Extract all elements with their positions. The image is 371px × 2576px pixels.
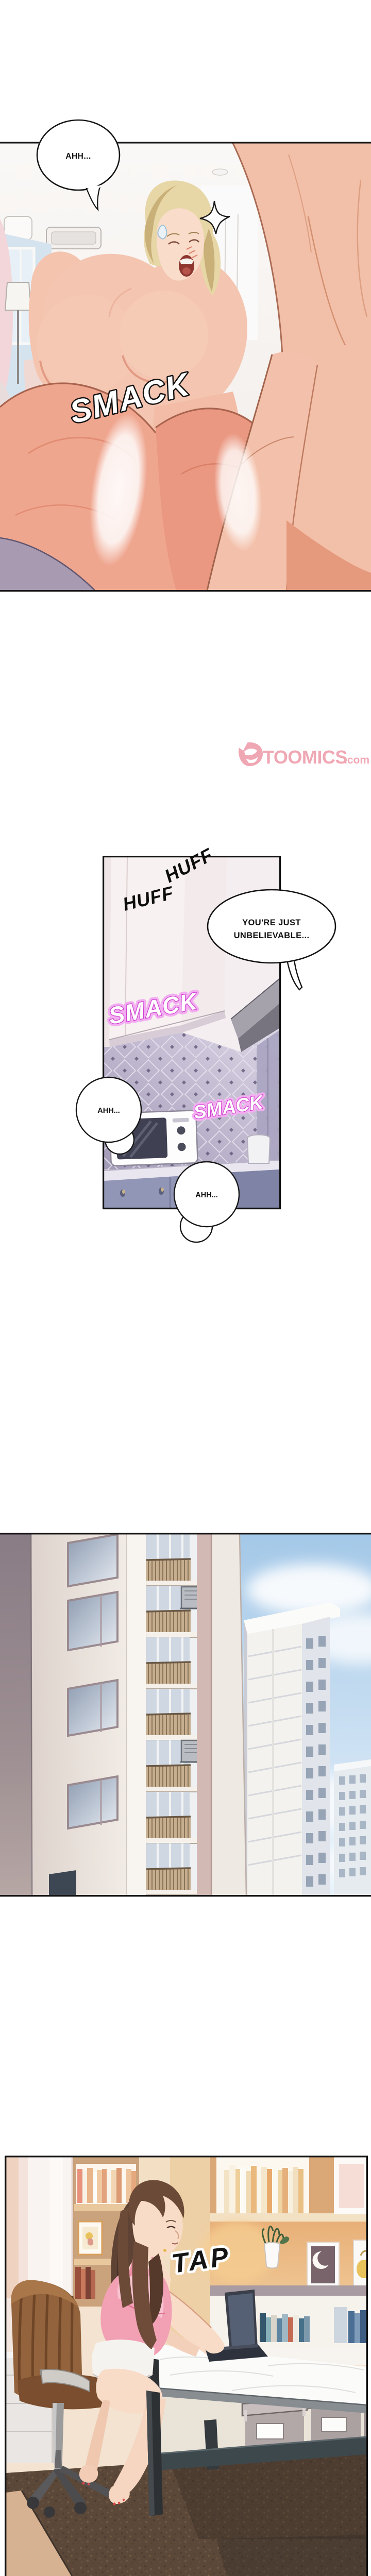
svg-text:YOU'RE JUST: YOU'RE JUST [242,918,301,927]
svg-text:AHH...: AHH... [97,1107,120,1115]
svg-text:UNBELIEVABLE...: UNBELIEVABLE... [234,931,310,940]
svg-text:AHH...: AHH... [65,152,91,161]
svg-text:AHH...: AHH... [195,1191,218,1199]
svg-text:TOOMICS: TOOMICS [263,747,347,768]
svg-text:.com: .com [344,754,369,766]
